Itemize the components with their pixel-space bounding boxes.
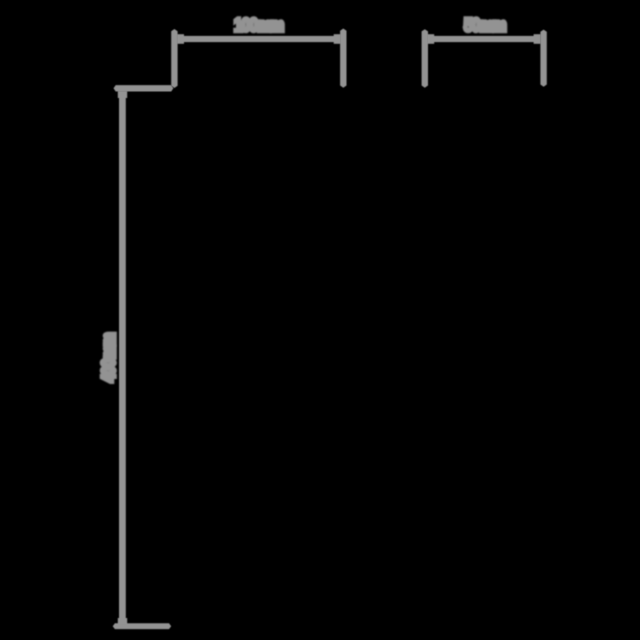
svg-text:100mm: 100mm xyxy=(234,14,284,36)
svg-text:50mm: 50mm xyxy=(464,14,506,36)
svg-text:400mm: 400mm xyxy=(97,333,119,383)
